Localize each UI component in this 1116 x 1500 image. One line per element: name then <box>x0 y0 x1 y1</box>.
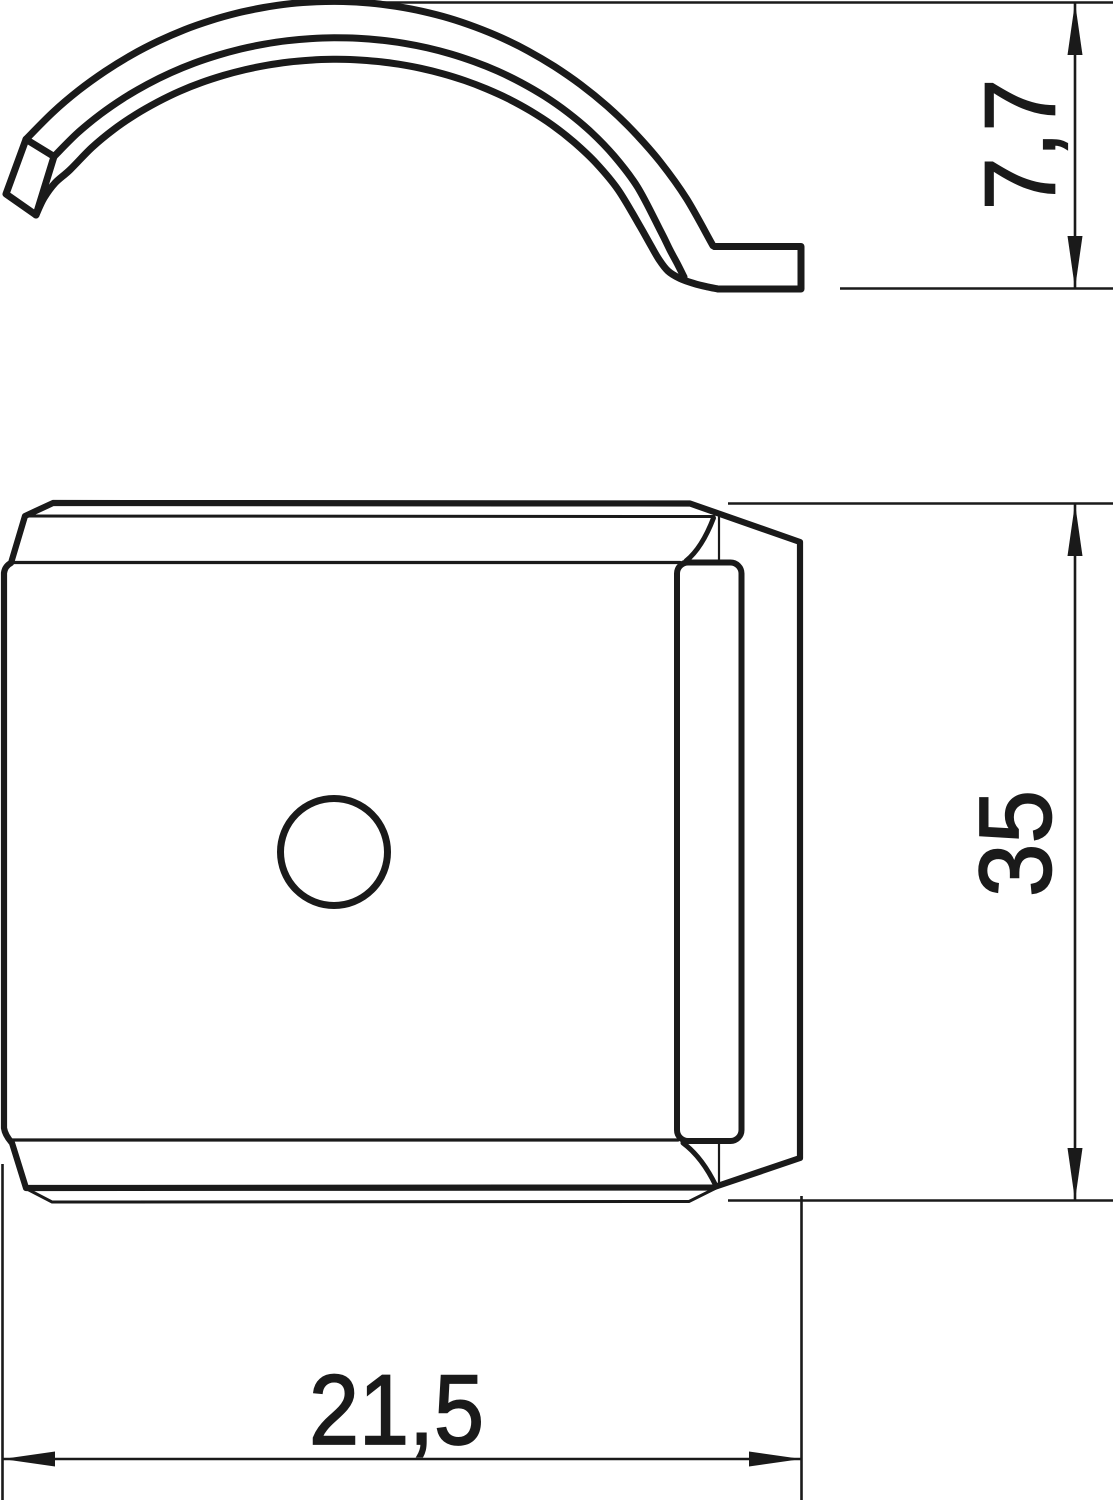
svg-text:21,5: 21,5 <box>309 1354 484 1465</box>
svg-text:35: 35 <box>959 790 1073 897</box>
svg-text:7,7: 7,7 <box>965 79 1077 210</box>
